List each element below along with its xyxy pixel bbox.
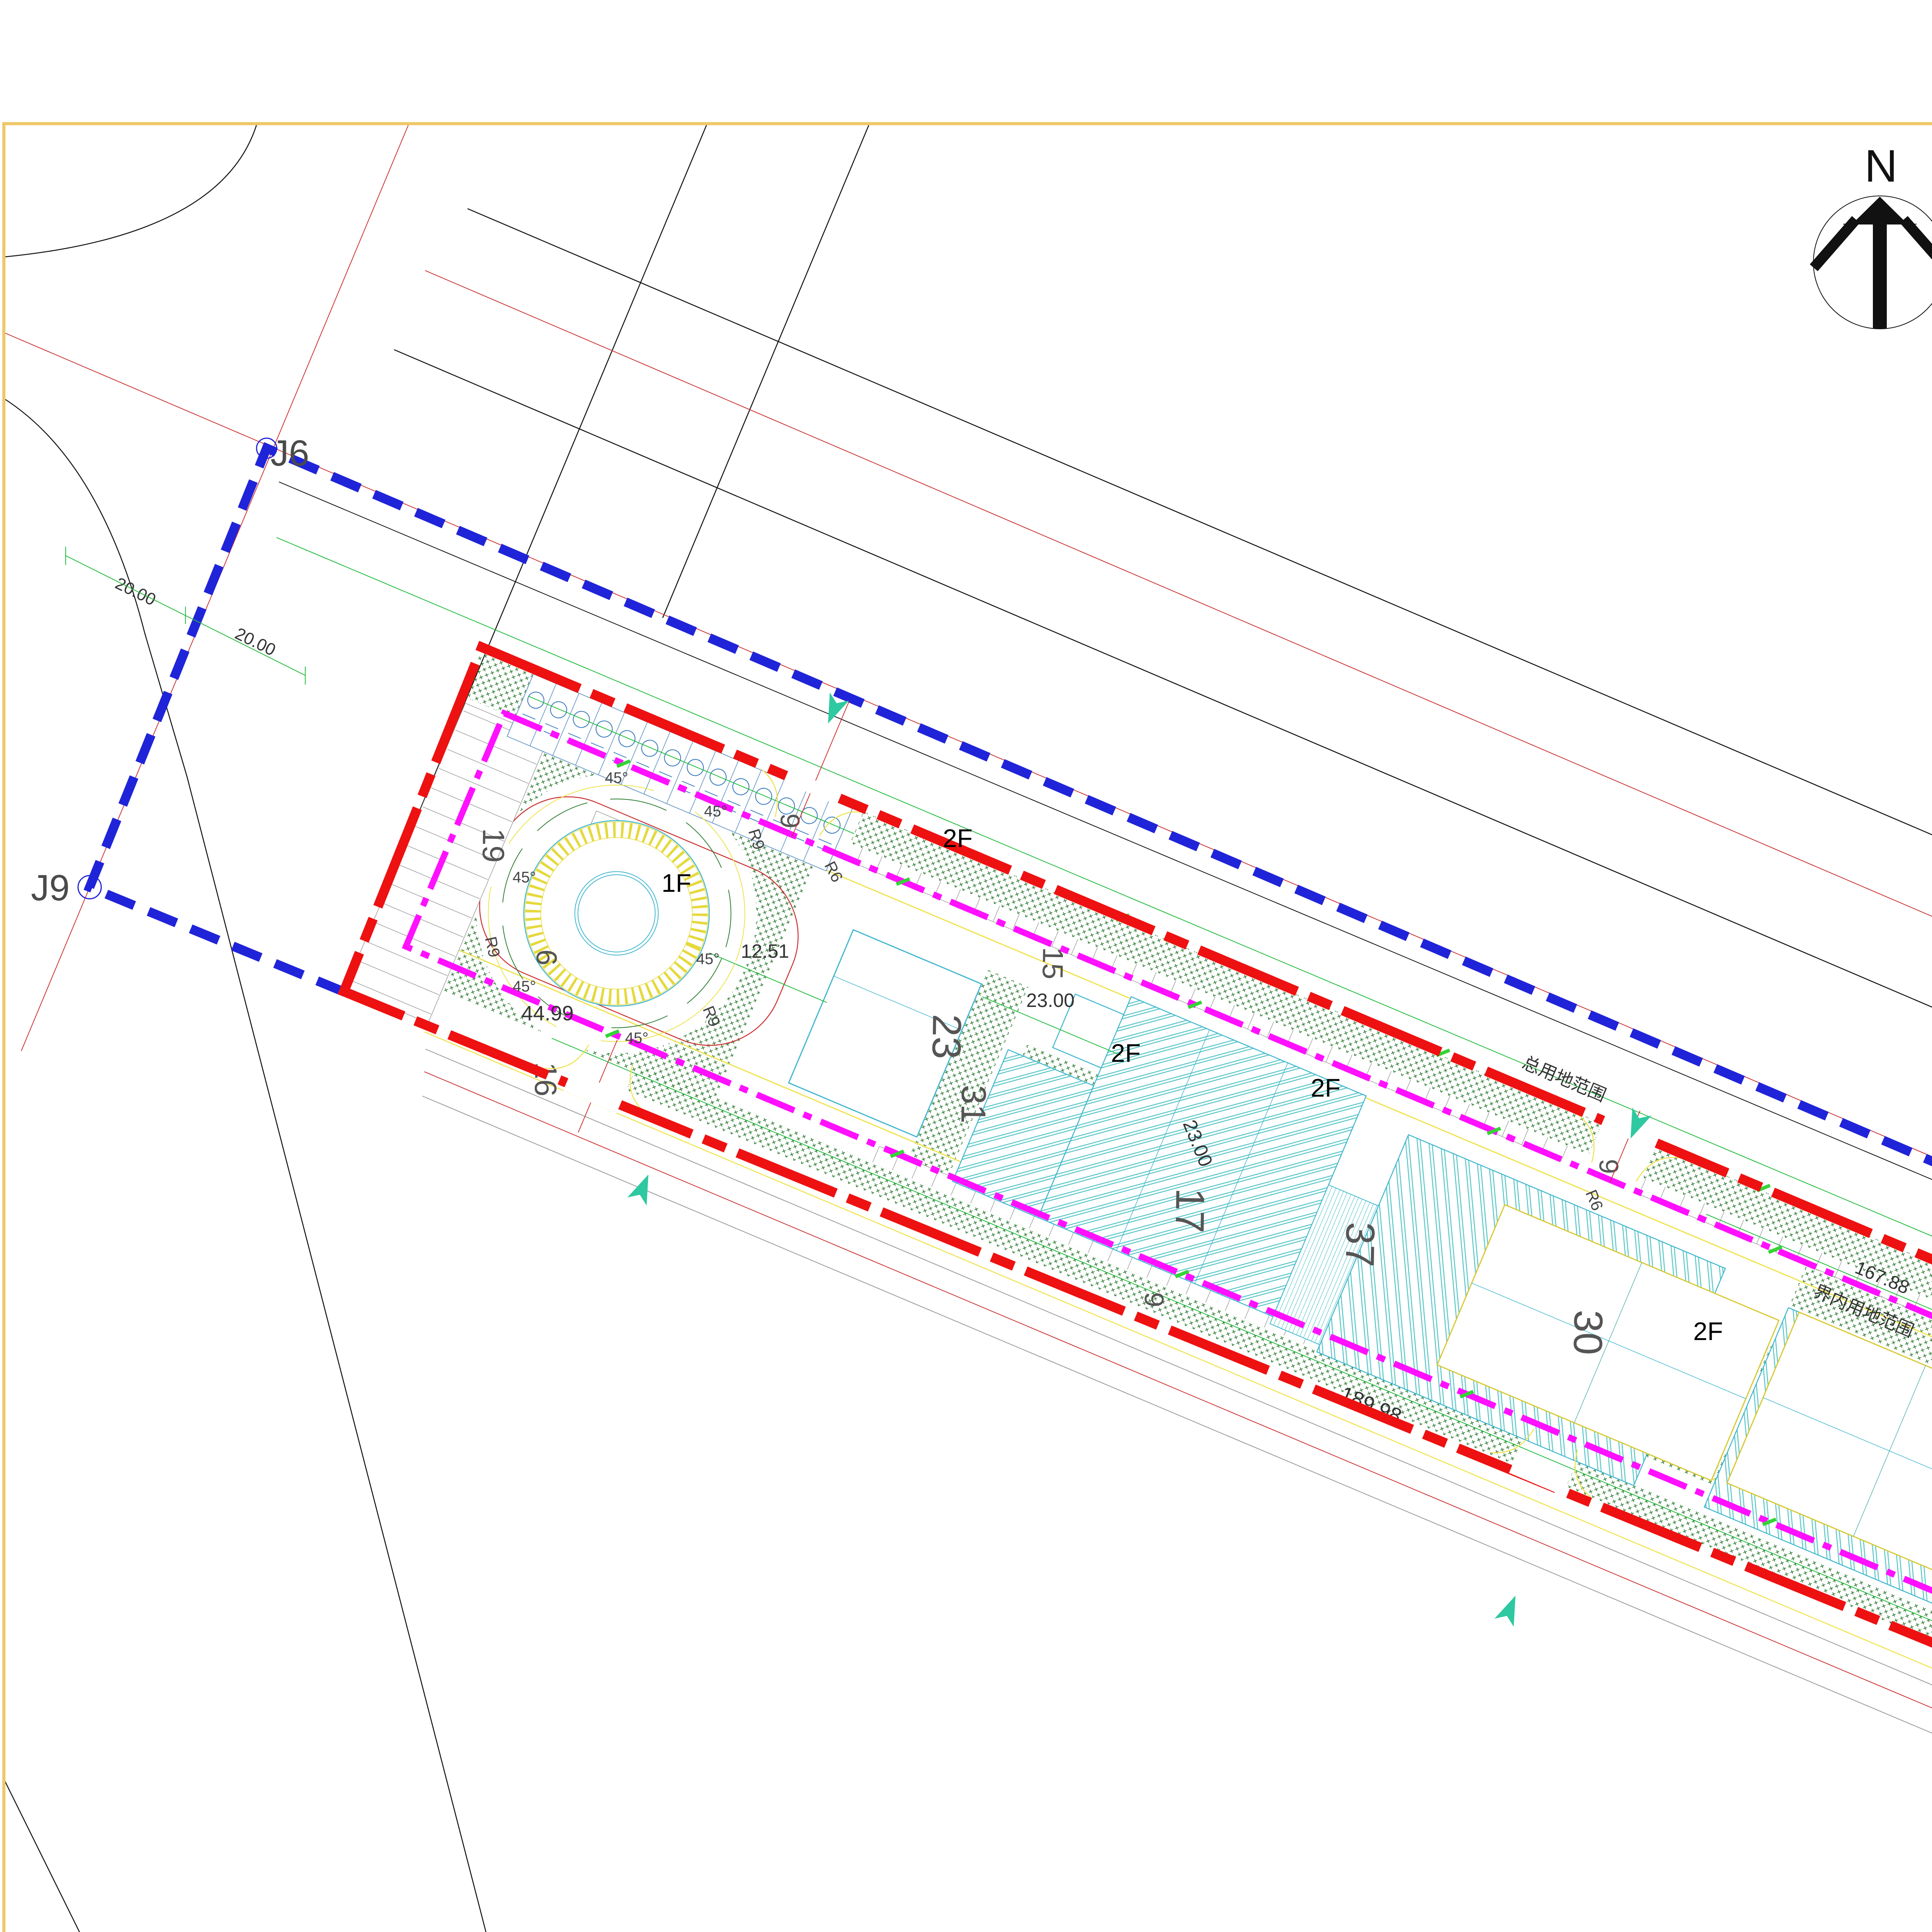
- svg-text:37: 37: [1337, 1222, 1383, 1268]
- svg-text:31: 31: [954, 1085, 993, 1124]
- svg-text:2F: 2F: [1111, 1039, 1141, 1067]
- svg-text:15: 15: [1036, 947, 1069, 980]
- svg-text:2F: 2F: [1311, 1073, 1340, 1102]
- svg-text:2F: 2F: [1693, 1317, 1723, 1345]
- svg-text:2F: 2F: [943, 824, 973, 852]
- svg-text:12.51: 12.51: [741, 940, 789, 962]
- svg-text:17: 17: [1167, 1188, 1213, 1234]
- svg-text:45°: 45°: [512, 869, 536, 886]
- svg-text:45°: 45°: [625, 1030, 649, 1047]
- svg-text:45°: 45°: [605, 769, 628, 786]
- svg-text:19: 19: [476, 828, 511, 863]
- svg-text:44.99: 44.99: [521, 1002, 573, 1025]
- svg-text:6: 6: [531, 949, 563, 966]
- svg-text:9: 9: [1139, 1292, 1170, 1307]
- svg-text:45°: 45°: [513, 978, 536, 995]
- svg-text:J9: J9: [31, 867, 70, 908]
- svg-text:1F: 1F: [662, 869, 691, 897]
- svg-text:45°: 45°: [704, 803, 728, 820]
- svg-text:23.00: 23.00: [1026, 990, 1075, 1011]
- svg-text:45°: 45°: [696, 951, 720, 968]
- svg-text:N: N: [1864, 141, 1897, 192]
- svg-text:30: 30: [1565, 1310, 1611, 1355]
- svg-text:23: 23: [923, 1014, 969, 1060]
- svg-text:J6: J6: [270, 433, 309, 474]
- svg-text:9: 9: [1594, 1159, 1624, 1174]
